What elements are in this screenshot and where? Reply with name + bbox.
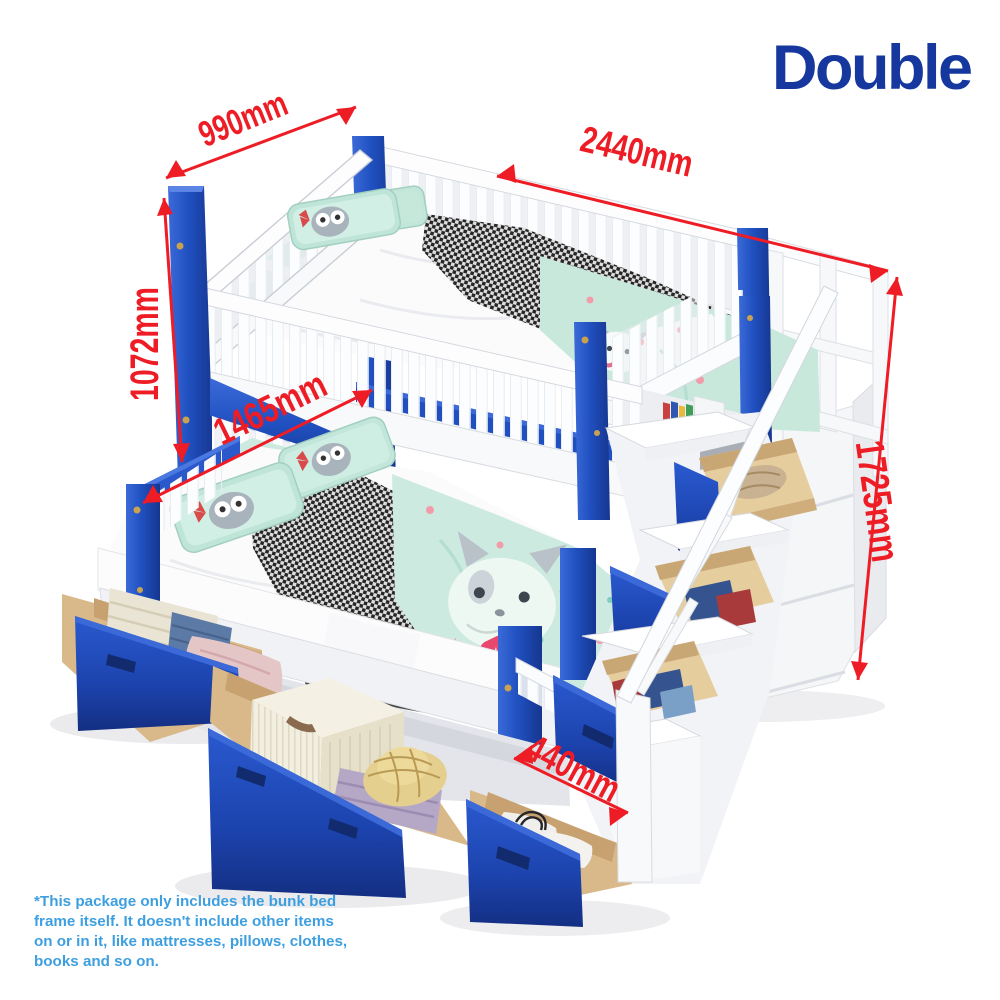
svg-text:frame itself. It doesn't inclu: frame itself. It doesn't include other i…	[34, 913, 334, 930]
svg-text:on or in it, like mattresses,: on or in it, like mattresses, pillows, c…	[34, 933, 347, 950]
svg-text:1072mm: 1072mm	[123, 287, 167, 401]
svg-text:Double: Double	[772, 33, 971, 103]
svg-text:books and so on.: books and so on.	[34, 953, 159, 970]
svg-text:*This package only includes th: *This package only includes the bunk bed	[34, 893, 336, 910]
